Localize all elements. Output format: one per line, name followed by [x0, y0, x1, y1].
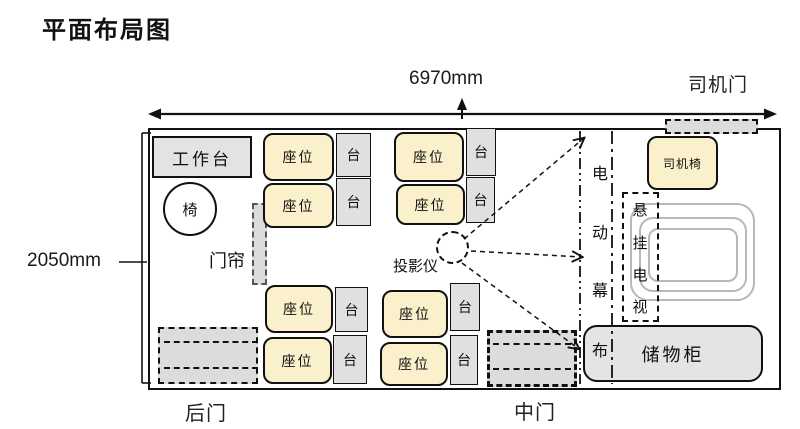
- workbench: 工作台: [152, 136, 252, 178]
- driver-door-label: 司机门: [688, 70, 748, 97]
- projector-circle: [436, 231, 469, 264]
- rear-door-label: 后门: [185, 397, 227, 426]
- seat: 座位: [382, 290, 448, 338]
- rear-door-steps: [164, 341, 258, 369]
- height-dimension-label: 2050mm: [27, 250, 101, 272]
- driver-door: [665, 119, 758, 134]
- middle-door-label: 中门: [514, 396, 556, 425]
- hanging-tv-label-char: 视: [629, 296, 651, 317]
- seat: 座位: [263, 183, 334, 228]
- driver-seat: 司机椅: [647, 136, 718, 190]
- width-dimension-tick-arrow: [457, 98, 467, 119]
- page-title: 平面布局图: [42, 10, 172, 45]
- electric-screen-label-char: 幕: [589, 277, 611, 301]
- chair-circle: 椅: [163, 182, 217, 236]
- electric-screen-label-char: 电: [589, 160, 611, 184]
- seat: 座位: [396, 184, 465, 225]
- floor-plan-diagram: 平面布局图 6970mm 司机门 2050mm 工作台 椅 门帘 座位 座位 台…: [0, 0, 800, 429]
- electric-screen-label-char: 动: [589, 219, 611, 243]
- height-dimension-bracket: [119, 133, 151, 383]
- side-table: 台: [333, 335, 367, 384]
- width-dimension-arrow: [148, 109, 777, 120]
- electric-screen-label-char: 布: [589, 337, 611, 361]
- hanging-tv-label-char: 悬: [629, 199, 651, 220]
- side-table: 台: [466, 177, 495, 223]
- seat: 座位: [394, 132, 464, 182]
- side-table: 台: [336, 133, 371, 177]
- seat: 座位: [265, 285, 333, 333]
- side-table: 台: [336, 178, 371, 226]
- conference-table-ring-inner: [648, 228, 738, 282]
- seat: 座位: [263, 133, 334, 181]
- middle-door-steps: [493, 343, 571, 370]
- width-dimension-label: 6970mm: [409, 68, 483, 90]
- door-curtain-label: 门帘: [209, 247, 245, 273]
- side-table: 台: [466, 128, 496, 176]
- hanging-tv-label-char: 挂: [629, 232, 651, 253]
- projector-label: 投影仪: [393, 255, 438, 276]
- hanging-tv-label-char: 电: [629, 264, 651, 285]
- side-table: 台: [335, 287, 368, 332]
- side-table: 台: [450, 335, 478, 385]
- side-table: 台: [450, 283, 480, 331]
- seat: 座位: [380, 342, 448, 386]
- seat: 座位: [263, 337, 332, 384]
